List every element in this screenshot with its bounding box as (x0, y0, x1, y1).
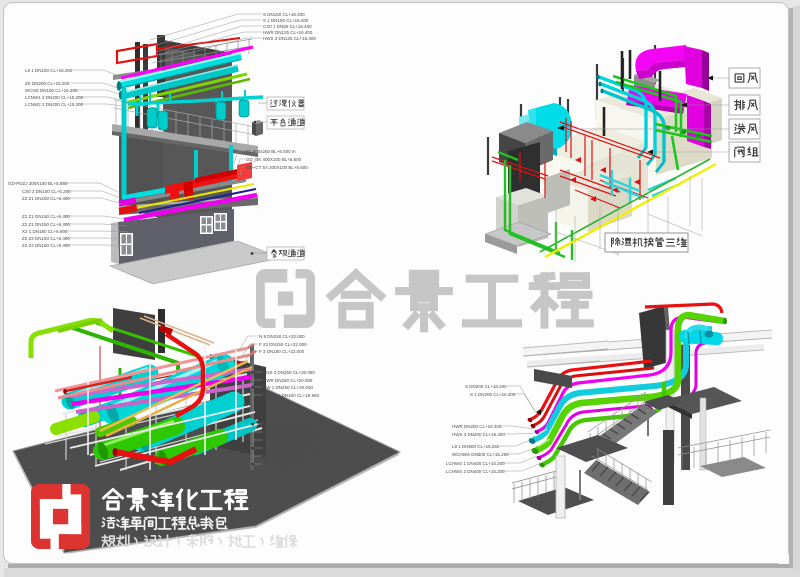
svg-text:Z2 Z3 DN150 CL+6.400: Z2 Z3 DN150 CL+6.400 (22, 236, 70, 241)
svg-text:LCNW2 2 DN200 CL+15.200: LCNW2 2 DN200 CL+15.200 (25, 102, 84, 107)
svg-text:X2 1 DN180 CL+6.600: X2 1 DN180 CL+6.600 (22, 229, 68, 234)
svg-text:CW 1 DN250 CL+20.040: CW 1 DN250 CL+20.040 (263, 385, 313, 390)
svg-text:N 9 DN150 CL+22.000: N 9 DN150 CL+22.000 (259, 334, 305, 339)
svg-text:GD_BK 400X100 BL+5.600: GD_BK 400X100 BL+5.600 (246, 157, 302, 162)
svg-text:HWS 3 DN125 CL+16.400: HWS 3 DN125 CL+16.400 (263, 36, 316, 41)
svg-text:Z2 Z1 DN150 CL+6.400: Z2 Z1 DN150 CL+6.400 (22, 196, 70, 201)
svg-text:L8 1 DN500 CL+15.250: L8 1 DN500 CL+15.250 (452, 444, 500, 449)
svg-text:HWR DN200 CL+16.400: HWR DN200 CL+16.400 (452, 424, 502, 429)
svg-text:HWS 3 DN200 CL+16.400: HWS 3 DN200 CL+16.400 (452, 432, 505, 437)
svg-text:F 3 DN150 CL+22.000: F 3 DN150 CL+22.000 (259, 349, 305, 354)
svg-text:HNS 3 DN250 CL+20.090: HNS 3 DN250 CL+20.090 (263, 370, 315, 375)
svg-text:HWR DN125 CL+16.400: HWR DN125 CL+16.400 (263, 30, 313, 35)
svg-text:S 1 DN250 CL+20.300: S 1 DN250 CL+20.300 (263, 462, 309, 467)
svg-text:LCHWS 2 DN400 CL+15.200: LCHWS 2 DN400 CL+15.200 (446, 469, 505, 474)
svg-text:GD-PDZJ 300X100 BL+5.650: GD-PDZJ 300X100 BL+5.650 (8, 181, 68, 186)
svg-text:LCHWS 2 DN700 CL+20.310: LCHWS 2 DN700 CL+20.310 (263, 446, 322, 451)
svg-text:WCNS DN150 CL+15.250: WCNS DN150 CL+15.250 (25, 88, 78, 93)
svg-text:Z2 Z4 DN150 CL+6.400: Z2 Z4 DN150 CL+6.400 (22, 243, 70, 248)
svg-text:F 22 DN150 CL+22.000: F 22 DN150 CL+22.000 (259, 342, 307, 347)
svg-text:WCHWS DN1000 CL+20.460: WCHWS DN1000 CL+20.460 (263, 430, 323, 435)
svg-text:WCHWS DN500 CL+15.250: WCHWS DN500 CL+15.250 (452, 452, 509, 457)
svg-text:CS0 2 DN100 CL+6.200: CS0 2 DN100 CL+6.200 (22, 189, 71, 194)
svg-text:S DN150 CL+16.400: S DN150 CL+16.400 (263, 12, 305, 17)
svg-text:P1 800x250 BL+6.400 m: P1 800x250 BL+6.400 m (246, 149, 296, 154)
svg-text:NNWP 1 DN100 CL+19.960: NNWP 1 DN100 CL+19.960 (263, 393, 320, 398)
svg-text:Z2 Z1 DN150 CL+6.400: Z2 Z1 DN150 CL+6.400 (22, 214, 70, 219)
svg-text:ZK DN200 CL+15.200: ZK DN200 CL+15.200 (25, 81, 70, 86)
svg-text:S 1 DN150 CL+16.400: S 1 DN150 CL+16.400 (263, 18, 309, 23)
svg-text:GD+CT 5A 200X100 BL+5.600: GD+CT 5A 200X100 BL+5.600 (246, 165, 308, 170)
svg-text:Z2 Z1 DN150 CL+6.400: Z2 Z1 DN150 CL+6.400 (22, 222, 70, 227)
svg-text:CS0 1 DN80 CL+16.400: CS0 1 DN80 CL+16.400 (263, 24, 312, 29)
svg-text:HWR DN250 CL+20.090: HWR DN250 CL+20.090 (263, 378, 313, 383)
svg-text:LH 1 DN1000 CL+20.460: LH 1 DN1000 CL+20.460 (263, 422, 314, 427)
svg-text:LCHWS 1 DN400 CL+15.200: LCHWS 1 DN400 CL+15.200 (446, 461, 505, 466)
svg-text:S DN350 CL+20.300: S DN350 CL+20.300 (263, 454, 305, 459)
svg-text:S 1 DN200 CL+16.400: S 1 DN200 CL+16.400 (470, 392, 516, 397)
svg-text:S DN200 CL+16.400: S DN200 CL+16.400 (465, 384, 507, 389)
svg-text:L8 1 DN150 CL+15.250: L8 1 DN150 CL+15.250 (25, 68, 73, 73)
svg-text:LCHWR 1 DN700 CL+20.310: LCHWR 1 DN700 CL+20.310 (263, 438, 322, 443)
svg-text:LCNW1 2 DN200 CL+15.200: LCNW1 2 DN200 CL+15.200 (25, 95, 84, 100)
